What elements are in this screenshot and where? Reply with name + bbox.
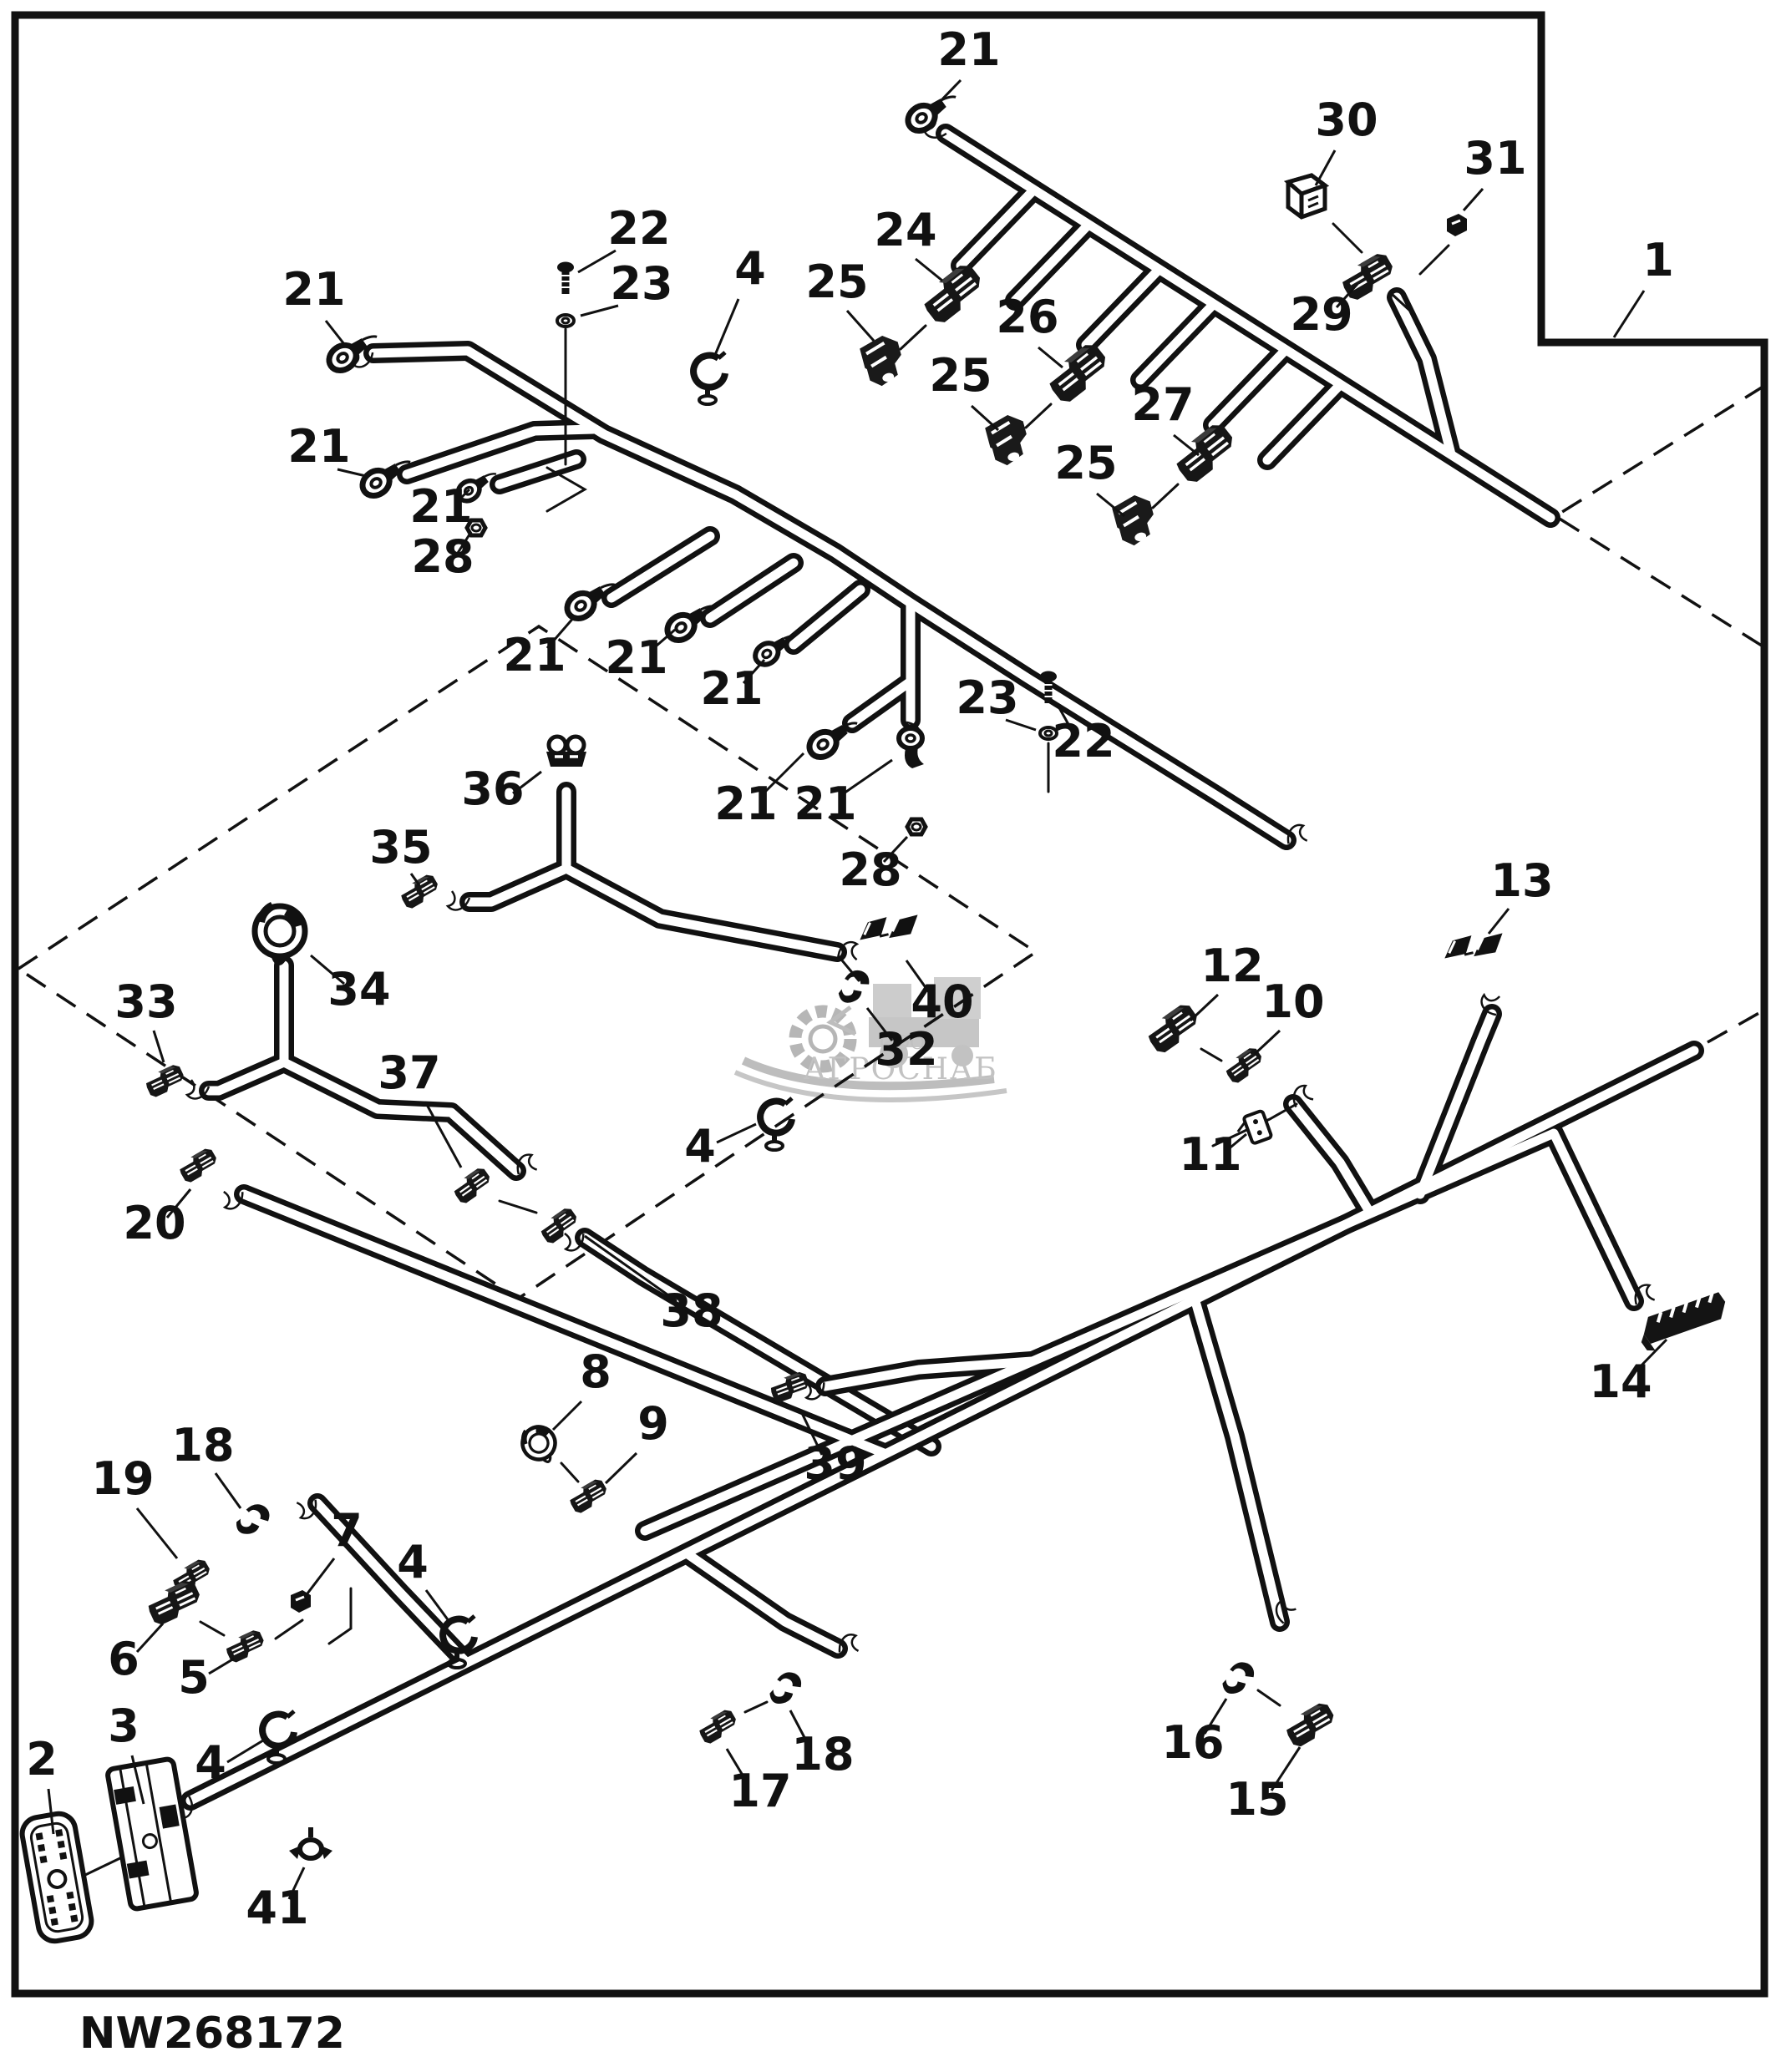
callout-label-4: 4 bbox=[195, 1736, 226, 1789]
callout-label-21: 21 bbox=[605, 631, 667, 684]
harness-3-wires bbox=[190, 1014, 1694, 1801]
connector-37 bbox=[450, 1166, 495, 1206]
callout-leader-21 bbox=[326, 321, 344, 344]
callout-label-1: 1 bbox=[1642, 234, 1674, 286]
callout-leader-26 bbox=[1038, 347, 1063, 367]
callout-leader-31 bbox=[1464, 189, 1483, 210]
callout-label-21: 21 bbox=[700, 662, 763, 715]
callout-leader-27 bbox=[1174, 435, 1199, 455]
nut-28 bbox=[907, 819, 926, 834]
callout-label-21: 21 bbox=[287, 420, 350, 473]
connector-39 bbox=[769, 1370, 812, 1404]
callout-leader-30 bbox=[1316, 150, 1335, 185]
callout-leader-12 bbox=[1190, 995, 1218, 1021]
callout-leader-25 bbox=[972, 406, 998, 430]
callout-label-38: 38 bbox=[660, 1284, 723, 1337]
callout-label-25: 25 bbox=[1054, 437, 1117, 489]
connector-36 bbox=[546, 737, 586, 767]
callout-label-41: 41 bbox=[246, 1882, 308, 1934]
callout-label-14: 14 bbox=[1589, 1355, 1652, 1408]
bracket-25 bbox=[1110, 492, 1159, 549]
callout-leader-4 bbox=[715, 299, 738, 355]
callout-label-10: 10 bbox=[1261, 975, 1324, 1028]
callout-label-9: 9 bbox=[637, 1397, 669, 1450]
callout-label-29: 29 bbox=[1290, 288, 1352, 341]
callout-label-7: 7 bbox=[331, 1504, 363, 1557]
clamp-4 bbox=[693, 352, 725, 404]
connector-40 bbox=[854, 896, 924, 960]
callout-label-20: 20 bbox=[123, 1197, 185, 1249]
wing-nut-41 bbox=[289, 1827, 332, 1859]
callout-label-4: 4 bbox=[734, 242, 766, 295]
callout-label-12: 12 bbox=[1200, 940, 1263, 992]
callout-label-22: 22 bbox=[1052, 715, 1114, 768]
clamp-18 bbox=[764, 1668, 807, 1708]
callout-label-24: 24 bbox=[874, 204, 936, 256]
harness-1-wires bbox=[373, 134, 1550, 840]
callout-label-28: 28 bbox=[411, 530, 474, 583]
callout-leader-8 bbox=[553, 1401, 581, 1430]
callout-label-25: 25 bbox=[929, 349, 992, 402]
callout-label-28: 28 bbox=[839, 843, 901, 896]
callout-label-21: 21 bbox=[714, 778, 777, 830]
dashed-continuation-right bbox=[1707, 1007, 1769, 1042]
callout-label-31: 31 bbox=[1464, 132, 1526, 185]
connector-12 bbox=[1143, 1001, 1203, 1056]
callout-label-15: 15 bbox=[1225, 1773, 1288, 1826]
callout-label-40: 40 bbox=[911, 975, 973, 1028]
callout-label-11: 11 bbox=[1179, 1128, 1241, 1181]
bracket-25 bbox=[983, 412, 1033, 469]
callout-leader-19 bbox=[137, 1508, 177, 1558]
connector-35 bbox=[398, 873, 442, 910]
clip-16 bbox=[1216, 1658, 1260, 1698]
callout-label-3: 3 bbox=[108, 1700, 140, 1752]
callout-label-8: 8 bbox=[580, 1345, 611, 1398]
callout-leader-25 bbox=[847, 311, 874, 341]
callout-leader-1 bbox=[1614, 291, 1644, 337]
callout-label-18: 18 bbox=[171, 1419, 234, 1472]
callout-label-22: 22 bbox=[607, 202, 670, 255]
callout-label-19: 19 bbox=[91, 1452, 154, 1505]
screw-22 bbox=[557, 262, 574, 295]
callout-label-33: 33 bbox=[114, 975, 177, 1028]
callout-label-37: 37 bbox=[378, 1046, 440, 1099]
callout-label-21: 21 bbox=[503, 629, 566, 681]
callout-label-17: 17 bbox=[728, 1765, 791, 1817]
hook-terminal-21 bbox=[899, 728, 924, 768]
bracket-25 bbox=[858, 332, 907, 389]
callout-label-21: 21 bbox=[282, 263, 345, 316]
callout-leader-9 bbox=[606, 1453, 637, 1483]
callout-leader-6 bbox=[137, 1624, 163, 1652]
callout-label-21: 21 bbox=[937, 23, 1000, 76]
callout-leader-13 bbox=[1489, 909, 1509, 934]
callout-label-6: 6 bbox=[108, 1633, 140, 1685]
callout-label-2: 2 bbox=[26, 1733, 58, 1786]
harness-2-wires bbox=[209, 792, 931, 1446]
callout-leader-7 bbox=[307, 1558, 334, 1593]
callout-label-5: 5 bbox=[178, 1651, 210, 1704]
clamp-4 bbox=[760, 1098, 792, 1150]
callout-label-25: 25 bbox=[805, 256, 868, 308]
connector-17 bbox=[696, 1708, 740, 1745]
callouts-layer: 2130311222342425262527252921212128212121… bbox=[26, 23, 1674, 1934]
plug-31 bbox=[1447, 214, 1467, 236]
connector-33 bbox=[143, 1063, 187, 1099]
callout-label-27: 27 bbox=[1131, 378, 1194, 431]
callout-label-35: 35 bbox=[369, 821, 432, 874]
connector-6 bbox=[145, 1578, 205, 1627]
callout-label-23: 23 bbox=[610, 257, 672, 310]
callout-leader-5 bbox=[209, 1659, 234, 1674]
callout-label-34: 34 bbox=[327, 963, 390, 1016]
connector-20 bbox=[176, 1147, 221, 1184]
dashed-continuation-top-right bbox=[1555, 386, 1764, 647]
connector-9 bbox=[566, 1477, 611, 1515]
callout-label-39: 39 bbox=[804, 1437, 866, 1490]
callout-label-4: 4 bbox=[684, 1120, 716, 1173]
callout-label-23: 23 bbox=[956, 671, 1018, 724]
connector-13 bbox=[1439, 914, 1509, 978]
connector-34 bbox=[255, 902, 305, 964]
callout-leader-4 bbox=[717, 1124, 756, 1142]
connector-5 bbox=[223, 1629, 267, 1664]
callout-label-36: 36 bbox=[461, 762, 524, 815]
callout-label-26: 26 bbox=[996, 291, 1058, 343]
callout-label-13: 13 bbox=[1490, 854, 1553, 907]
connector-10 bbox=[1222, 1046, 1266, 1086]
callout-label-4: 4 bbox=[397, 1536, 429, 1588]
connector-15 bbox=[1282, 1700, 1339, 1750]
clip-32 bbox=[831, 965, 875, 1007]
callout-label-16: 16 bbox=[1161, 1716, 1224, 1769]
callout-leader-18 bbox=[216, 1473, 241, 1508]
figure-code: NW268172 bbox=[79, 2009, 345, 2059]
connector-3 bbox=[107, 1758, 197, 1909]
callout-label-18: 18 bbox=[791, 1728, 854, 1781]
callout-label-30: 30 bbox=[1315, 94, 1378, 146]
washer-23 bbox=[557, 315, 574, 327]
callout-leader-10 bbox=[1255, 1031, 1280, 1054]
relay-30 bbox=[1288, 175, 1325, 217]
grommet-2 bbox=[19, 1811, 94, 1944]
callout-label-21: 21 bbox=[794, 778, 856, 830]
callout-label-32: 32 bbox=[875, 1023, 937, 1076]
callout-leader-24 bbox=[916, 259, 942, 281]
connector-38 bbox=[537, 1206, 581, 1246]
callout-leader-21 bbox=[937, 80, 961, 104]
callout-label-21: 21 bbox=[409, 480, 472, 533]
wiring-harness-parts-diagram: ООО АГРОСНАБ bbox=[0, 0, 1776, 2072]
